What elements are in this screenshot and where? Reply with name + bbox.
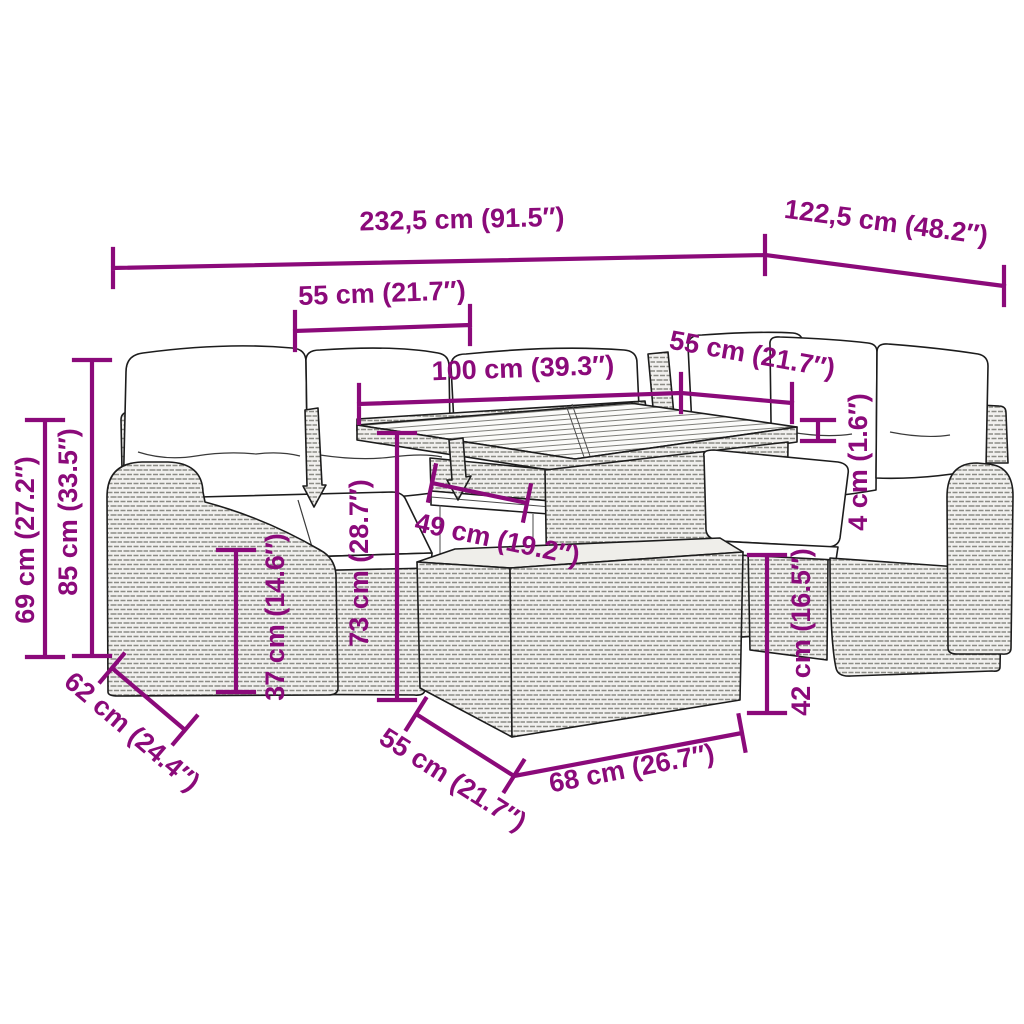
dim-label-tabletop-thickness: 4 cm (1.6″) [843,393,873,531]
dim-total-length-right: 122,5 cm (48.2″) [765,194,1004,305]
dim-backrest-height: 85 cm (33.5″) [53,360,110,656]
ottoman [417,538,743,737]
dim-label-total-length-right: 122,5 cm (48.2″) [783,194,990,251]
dim-label-seat-width-left: 55 cm (21.7″) [298,275,466,311]
dim-label-table-length: 100 cm (39.3″) [431,350,614,386]
dimension-diagram-canvas: 232,5 cm (91.5″) 122,5 cm (48.2″) 55 cm … [0,0,1024,1024]
dim-label-total-length-left: 232,5 cm (91.5″) [359,202,565,237]
seat-cushion [704,450,849,547]
dim-label-table-height: 73 cm (28.7″) [344,479,374,647]
dim-label-armrest-height: 69 cm (27.2″) [10,456,40,624]
back-cushion [876,344,988,478]
furniture-illustration [107,332,1013,737]
dim-label-ottoman-height: 42 cm (16.5″) [786,548,816,716]
dim-seat-width-left: 55 cm (21.7″) [295,275,470,350]
furniture-dimension-diagram: 232,5 cm (91.5″) 122,5 cm (48.2″) 55 cm … [0,0,1024,1024]
dim-label-ottoman-width: 68 cm (26.7″) [547,738,717,799]
ottoman-left-face [417,562,512,737]
dim-total-length-left: 232,5 cm (91.5″) [113,202,765,287]
dim-label-seat-height: 37 cm (14.6″) [260,533,290,701]
dim-label-backrest-height: 85 cm (33.5″) [53,428,83,596]
ottoman-right-face [510,552,743,737]
right-armrest [947,463,1013,654]
